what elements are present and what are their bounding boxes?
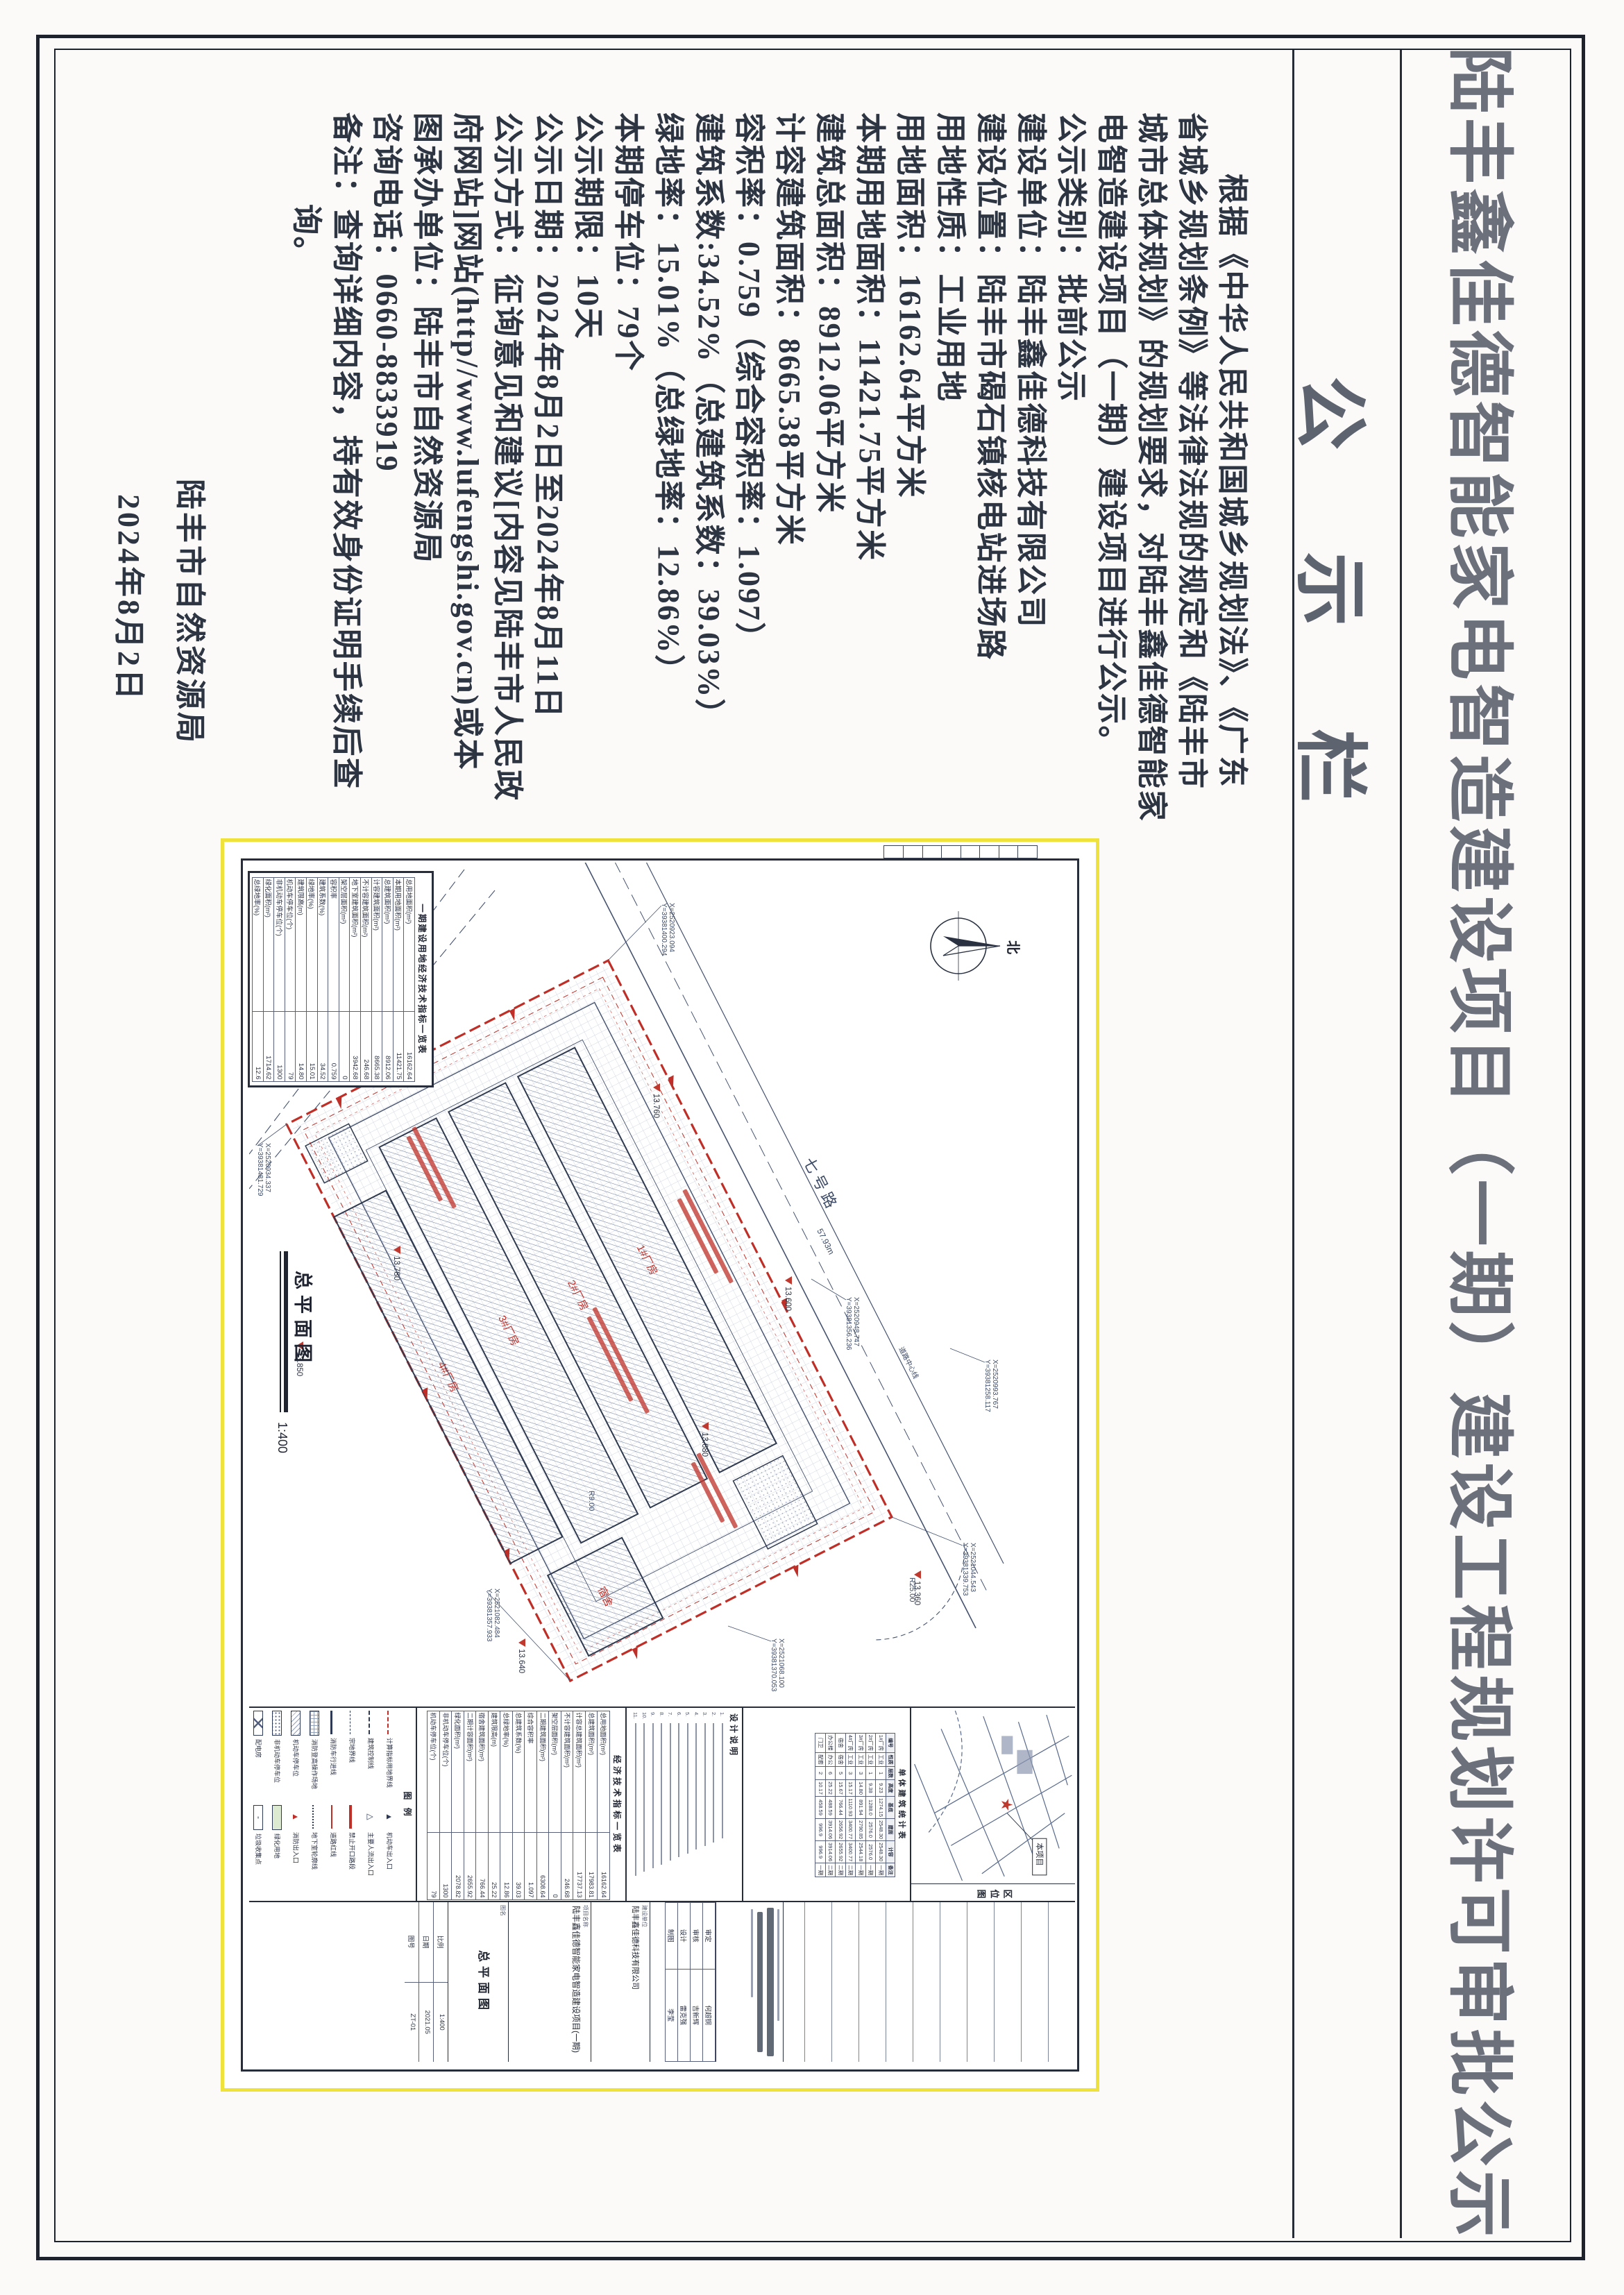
legend-item: 道路红线 — [324, 1805, 343, 1899]
table-row: 3#厂房工业314.80891.942790.852544.18一期 — [856, 1733, 866, 1877]
note-line: 2. — [709, 1708, 718, 1902]
table-row: 计容总建筑面积(m²)17737.13 — [573, 1711, 586, 1899]
svg-text:X=2521044.543Y=39381339.753: X=2521044.543Y=39381339.753 — [961, 1543, 976, 1596]
tri-half-icon: ▲ — [292, 1805, 301, 1829]
box-grid-icon — [291, 1711, 301, 1736]
coordinate-callout: X=2520948.747Y=39381356.236 — [811, 1279, 860, 1350]
legend-box: 图 例 计算指标用地界线▲机动车出入口建筑控制线△主要人流出入口宗地界线禁止开口… — [245, 1708, 416, 1902]
svg-text:X=2520923.094Y=39381400.294: X=2520923.094Y=39381400.294 — [660, 903, 675, 956]
design-firm-box — [716, 1902, 783, 2062]
legend-item: 垃圾收集点 — [249, 1805, 268, 1899]
coordinate-callout: X=2520993.767Y=39381258.117 — [950, 1348, 999, 1412]
notice-line: 建设单位：陆丰鑫佳德科技有限公司 — [1010, 112, 1051, 858]
location-map: ★ 本项目 — [911, 1708, 1075, 1883]
project-name: 陆丰鑫佳德智能家电智造建设项目(一期) — [569, 1902, 582, 2062]
notice-line: 备注：查询详细内容，持有效身份证明手续后查 — [326, 112, 366, 858]
table-row: 二期建筑面积(m²)6308.64 — [537, 1711, 550, 1899]
svg-text:13.780: 13.780 — [392, 1256, 400, 1280]
spot-elevation: 13.640 — [517, 1638, 525, 1673]
table-row: 绿化面积(m²)1714.62 — [263, 877, 274, 1081]
table-row: 总建筑面积(m²)8912.06 — [382, 877, 394, 1081]
bar-red-icon — [350, 1805, 353, 1829]
notice-line: 容积率：0.759（综合容积率：1.097） — [729, 112, 769, 858]
notice-line: 咨询电话：0660-8833919 — [366, 112, 407, 858]
notice-line: 建筑系数:34.52%（总建筑系数：39.03%） — [688, 112, 729, 858]
line-thick-icon — [331, 1711, 333, 1734]
legend-item: 禁止开口路段 — [343, 1805, 362, 1899]
econ2-rows: 总用地面积(m²)16162.64总建筑面积(m²)17983.81计容总建筑面… — [428, 1711, 611, 1900]
line-red-dash-icon — [387, 1711, 389, 1734]
roles-rows: 审定何超铜审核吉新辉设计雷克强制图李莹 — [665, 1902, 716, 2062]
box-dots-icon — [273, 1711, 282, 1736]
site-plan-sheet: 北 七号路 57.93m 道路中心线 R25.00 R9.00 — [221, 838, 1099, 2092]
table-row: 总用地面积(m²)16162.64 — [404, 877, 415, 1081]
notice-line: 建筑总面积：8912.06平方米 — [809, 112, 849, 858]
svg-text:X=2521068.100Y=39381370.053: X=2521068.100Y=39381370.053 — [770, 1638, 785, 1692]
table-row: 非机动车停车位(个)1300 — [274, 877, 285, 1081]
table-row: 建筑系数(%)34.52 — [317, 877, 328, 1081]
table-row: 总绿地率(%)12.86 — [500, 1711, 513, 1899]
stats-rows: 编号性质层数高度基底建面计容备注1#厂房工业19.231274.152548.3… — [815, 1733, 896, 1878]
notice-line: 本期停车位：79个 — [608, 112, 648, 858]
legend-item: 计算指标用地界线 — [380, 1711, 399, 1805]
notice-line: 府网站]网站(http//www.lufengshi.gov.cn)或本 — [447, 112, 487, 858]
svg-text:13.640: 13.640 — [517, 1649, 525, 1673]
signature-org: 陆丰市自然资源局 — [171, 479, 215, 745]
sheet-meta-box: 比例 1:400 日期 2021.05 图号 ZT-01 — [405, 1902, 448, 2062]
table-row: 设计雷克强 — [678, 1903, 691, 2062]
table-row: 综合容积率1.097 — [525, 1711, 537, 1899]
svg-text:13.680: 13.680 — [700, 1432, 709, 1457]
location-map-title: 区位图 — [974, 1887, 1013, 1900]
table-row: 非机动车停车位(个)1300 — [440, 1711, 452, 1899]
sheet-name-box: 图名 总平面图 — [448, 1902, 508, 2062]
legend-items: 计算指标用地界线▲机动车出入口建筑控制线△主要人流出入口宗地界线禁止开口路段消防… — [248, 1708, 400, 1902]
table-row: 办公楼办公625.22488.593914.063914.06二期 — [826, 1733, 836, 1877]
sheetno-label: 图号 — [405, 1902, 418, 1983]
table-row: 建筑限高(m)14.80 — [296, 877, 307, 1081]
board-header: 公示栏 — [1283, 376, 1390, 905]
svg-text:13.360: 13.360 — [913, 1581, 921, 1605]
box-dot-icon — [254, 1805, 264, 1830]
hatch-grid-icon — [310, 1711, 320, 1736]
line-red-icon — [331, 1805, 332, 1829]
notice-line: 电智造建设项目（一期）建设项目进行公示。 — [1091, 112, 1131, 858]
stats-title: 单体建筑统计表 — [895, 1708, 910, 1902]
table-row: 架空层面积(m²)0 — [549, 1711, 561, 1899]
note-line: 5. — [684, 1708, 693, 1902]
legend-title: 图 例 — [400, 1708, 416, 1902]
legend-item: ▲机动车出入口 — [380, 1805, 399, 1899]
design-notes-box: 设计说明 1.2.3.4.5.6.7.8.9.10.11. — [625, 1708, 742, 1902]
note-line: 10. — [640, 1708, 649, 1902]
table-row: 机动车停车位(个)79 — [428, 1711, 440, 1899]
notice-line: 用地性质：工业用地 — [930, 112, 970, 858]
revision-rows — [783, 1902, 1075, 2062]
table-row: 不计容建筑面积(m²)246.68 — [361, 877, 372, 1081]
svg-text:X=2520993.767Y=39381258.117: X=2520993.767Y=39381258.117 — [983, 1360, 999, 1412]
sheetno-value: ZT-01 — [405, 1983, 418, 2063]
table-row: 总建筑面积(m²)17983.81 — [586, 1711, 598, 1899]
legend-item: 机动车停车位 — [287, 1711, 305, 1805]
board-band: 公示栏 — [1292, 50, 1400, 2238]
signature-date: 2024年8月2日 — [110, 494, 154, 702]
plan-caption: 总平面图 1:400 — [276, 1251, 313, 1453]
boundary-wedge-icon — [632, 1647, 643, 1659]
note-line: 1. — [718, 1708, 727, 1902]
svg-text:X=2520948.747Y=39381356.236: X=2520948.747Y=39381356.236 — [845, 1297, 860, 1350]
landscape-document: 陆丰鑫佳德智能家电智造建设项目（一期）建设工程规划许可审批公示 公示栏 根据《中… — [0, 0, 1624, 2295]
legend-item: 宗地界线 — [343, 1711, 362, 1805]
coordinate-callout: X=2520934.337Y=39381481.729 — [256, 1124, 287, 1196]
table-row: 门卫配套210.17458.59996.9996.9一期 — [815, 1733, 826, 1877]
table-row: 机动车停车位(个)79 — [285, 877, 296, 1081]
title-block: 审定何超铜审核吉新辉设计雷克强制图李莹 建设单位 陆丰鑫佳德科技有限公司 项目名… — [249, 1901, 1075, 2062]
client-box: 建设单位 陆丰鑫佳德科技有限公司 — [591, 1902, 650, 2062]
date-value: 2021.05 — [419, 1983, 433, 2063]
notice-line: 根据《中华人民共和国城乡规划法》、《广东 — [1212, 112, 1252, 858]
scale-value: 1:400 — [434, 1983, 448, 2063]
note-line: 11. — [632, 1708, 641, 1902]
table-row: 绿化面积(m²)2078.82 — [452, 1711, 464, 1899]
line-dash-icon — [350, 1711, 351, 1734]
tri-solid-icon: ▲ — [386, 1805, 394, 1829]
tri-open-icon: △ — [367, 1805, 375, 1829]
building-stats-box: 单体建筑统计表 编号性质层数高度基底建面计容备注1#厂房工业19.231274.… — [742, 1708, 910, 1902]
legend-item: 建筑控制线 — [362, 1711, 380, 1805]
legend-item: 绿化用地 — [268, 1805, 287, 1899]
client-name: 陆丰鑫佳德科技有限公司 — [628, 1902, 641, 2062]
svg-text:X=2520934.337Y=39381481.729: X=2520934.337Y=39381481.729 — [256, 1143, 271, 1196]
coordinate-callout: X=2521044.543Y=39381339.753 — [892, 1517, 976, 1596]
scanned-notice-page: { "page": { "title": "陆丰鑫佳德智能家电智造建设项目（一期… — [0, 0, 1624, 2295]
notice-body: 根据《中华人民共和国城乡规划法》、《广东省城乡规划条例》等法律法规的规定和《陆丰… — [286, 112, 1252, 858]
table-row: 架空层面积(m²)0 — [339, 877, 350, 1081]
legend-item: △主要人流出入口 — [362, 1805, 380, 1899]
table-row: 总绿地率(%)12.6 — [253, 877, 264, 1081]
box-x-icon — [254, 1711, 264, 1736]
location-map-box: ★ 本项目 区位图 — [910, 1708, 1075, 1902]
econ-table-phase1: 一期建设用地经济技术指标一览表 总用地面积(m²)16162.64本期用地面积(… — [248, 871, 434, 1087]
notes-lines: 1.2.3.4.5.6.7.8.9.10.11. — [632, 1708, 727, 1902]
sheet-name: 总平面图 — [471, 1902, 499, 2062]
spot-elevation: 13.600 — [784, 1276, 792, 1311]
notice-line: 城市总体规划》的规划要求，对陆丰鑫佳德智能家 — [1131, 112, 1172, 858]
sheet-name-label: 图名 — [499, 1902, 508, 2062]
road-centerline-label: 道路中心线 — [897, 1345, 920, 1380]
note-line: 4. — [692, 1708, 701, 1902]
svg-text:13.600: 13.600 — [784, 1287, 792, 1311]
econ-table2-box: 经济技术指标一览表 总用地面积(m²)16162.64总建筑面积(m²)1798… — [416, 1708, 625, 1902]
econ1-title: 一期建设用地经济技术指标一览表 — [415, 873, 432, 1085]
table-row: 建筑限高(m)25.22 — [489, 1711, 501, 1899]
table-row: 审定何超铜 — [703, 1903, 716, 2062]
legend-item: 配电房 — [249, 1711, 268, 1805]
north-label: 北 — [1005, 940, 1021, 954]
document-title: 陆丰鑫佳德智能家电智造建设项目（一期）建设工程规划许可审批公示 — [1438, 47, 1534, 2242]
notice-line: 绿地率：15.01%（总绿地率：12.86%） — [648, 112, 688, 858]
note-line: 6. — [675, 1708, 684, 1902]
notice-line: 公示方式：征询意见和建议[内容见陆丰市人民政 — [487, 112, 527, 858]
line-dashdot-icon — [369, 1711, 370, 1734]
econ1-rows: 总用地面积(m²)16162.64本期用地面积(m²)11421.75总建筑面积… — [252, 877, 415, 1082]
project-label: 项目名称 — [582, 1902, 591, 2062]
caption-text: 总平面图 — [292, 1271, 313, 1368]
notice-line: 公示期限：10天 — [568, 112, 608, 858]
spot-elevation: 13.360 — [913, 1570, 921, 1605]
svg-text:13.760: 13.760 — [652, 1094, 660, 1118]
legend-item: 地下室轮廓线 — [305, 1805, 324, 1899]
table-row: 绿地率(%)15.01 — [307, 877, 318, 1081]
legend-item: 非机动车停车位 — [268, 1711, 287, 1805]
notice-line: 公示类别：批前公示 — [1051, 112, 1091, 858]
table-row: 总建筑系数(%)39.03 — [513, 1711, 525, 1899]
notes-title: 设计说明 — [727, 1708, 742, 1902]
note-line: 3. — [701, 1708, 710, 1902]
table-row: 制图李莹 — [666, 1903, 678, 2062]
table-row: 地下室建筑面积(m²)3942.68 — [350, 877, 361, 1081]
notice-lines: 根据《中华人民共和国城乡规划法》、《广东省城乡规划条例》等法律法规的规定和《陆丰… — [286, 112, 1252, 858]
notice-line: 询。 — [286, 112, 326, 858]
signoff-strip — [883, 845, 1038, 858]
table-row: 审核吉新辉 — [691, 1903, 703, 2062]
notice-line: 用地面积：16162.64平方米 — [890, 112, 930, 858]
legend-item: 消防车行进线 — [324, 1711, 343, 1805]
notice-line: 本期用地面积：11421.75平方米 — [849, 112, 890, 858]
table-row: 本期用地面积(m²)11421.75 — [393, 877, 404, 1081]
notice-line: 计容建筑面积：8665.38平方米 — [769, 112, 809, 858]
box-green-icon — [273, 1805, 282, 1830]
coordinate-callout: X=2521068.100Y=39381370.053 — [728, 1626, 785, 1692]
table-row: 宿舍宿舍515.67766.442656.922655.92二期 — [836, 1733, 846, 1877]
legend-item: ▲消防出入口 — [287, 1805, 305, 1899]
table-row: 二期计容面积(m²)2655.92 — [464, 1711, 477, 1899]
table-row: 宿舍建筑面积(m²)766.44 — [476, 1711, 489, 1899]
table-row: 计容建筑面积(m²)8665.38 — [371, 877, 382, 1081]
notice-line: 图承办单位：陆丰市自然资源局 — [407, 112, 447, 858]
title-band: 陆丰鑫佳德智能家电智造建设项目（一期）建设工程规划许可审批公示 — [1400, 50, 1570, 2238]
project-star-icon: ★ — [998, 1798, 1015, 1812]
line-dot-icon — [312, 1805, 314, 1829]
scale-label: 比例 — [434, 1902, 448, 1983]
table-row: 总用地面积(m²)16162.64 — [598, 1711, 610, 1899]
roles-box: 审定何超铜审核吉新辉设计雷克强制图李莹 — [650, 1902, 716, 2062]
table-row: 4#厂房工业315.171110.933400.773400.77二期 — [846, 1733, 856, 1877]
table-row: 1#厂房工业19.231274.152548.302548.30一期 — [876, 1733, 886, 1877]
note-line: 9. — [649, 1708, 658, 1902]
side-panel: ★ 本项目 区位图 单体建筑统计表 编号性质层数高度基底建面计容备注1#厂房工业… — [249, 1707, 1075, 1902]
coordinate-callout: X=2520923.094Y=39381400.294 — [608, 903, 675, 960]
client-label: 建设单位 — [641, 1902, 650, 2062]
project-marker-label: 本项目 — [1035, 1843, 1044, 1865]
notice-line: 公示日期：2024年8月2日至2024年8月11日 — [527, 112, 568, 858]
project-box: 项目名称 陆丰鑫佳德智能家电智造建设项目(一期) — [508, 1902, 591, 2062]
notice-line: 建设位置：陆丰市碣石镇核电站进场路 — [970, 112, 1010, 858]
note-line: 8. — [657, 1708, 666, 1902]
notice-line: 省城乡规划条例》等法律法规的规定和《陆丰市 — [1172, 112, 1212, 858]
date-label: 日期 — [419, 1902, 433, 1983]
caption-scale: 1:400 — [276, 1422, 289, 1453]
table-row: 容积率0.759 — [328, 877, 339, 1081]
table-row: 2#厂房工业19.381288.02576.02576.0一期 — [866, 1733, 877, 1877]
svg-text:X=2521082.484Y=39381357.933: X=2521082.484Y=39381357.933 — [485, 1589, 500, 1642]
table-row: 不计容建筑面积(m²)246.68 — [561, 1711, 574, 1899]
sheet-content: 北 七号路 57.93m 道路中心线 R25.00 R9.00 — [245, 863, 1075, 2067]
legend-item: 消防登高操作场地 — [305, 1711, 324, 1805]
note-line: 7. — [666, 1708, 675, 1902]
road-length-label: 57.93m — [815, 1227, 836, 1256]
econ2-title: 经济技术指标一览表 — [610, 1708, 625, 1902]
north-compass: 北 — [931, 911, 1021, 981]
